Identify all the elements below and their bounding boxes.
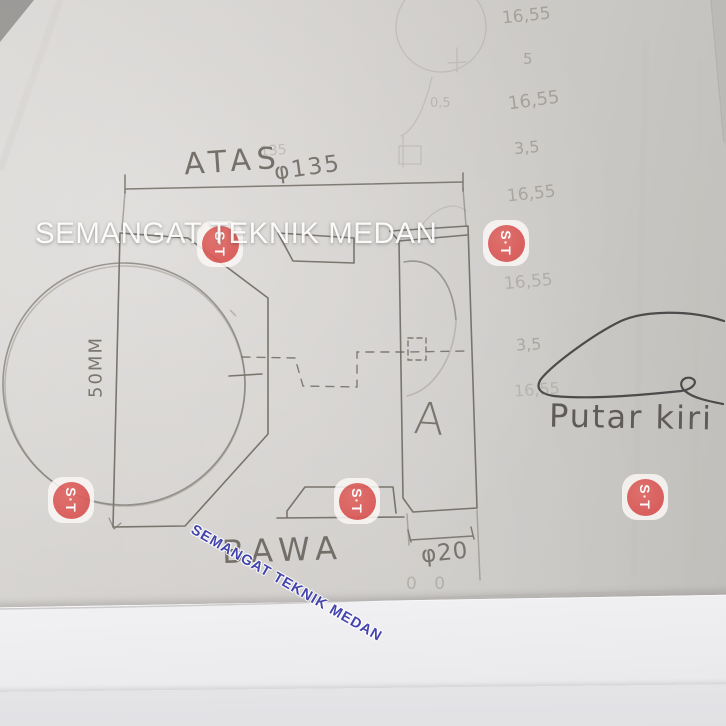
- stamp-circle: S·T: [339, 483, 376, 520]
- height-dimension: 50MM: [86, 336, 107, 398]
- stamp-circle: S·T: [53, 482, 90, 519]
- stamp-logo: S·T: [622, 474, 668, 520]
- ghost-mark: 135: [259, 142, 287, 160]
- bore-diameter-dimension: φ20: [420, 538, 470, 569]
- sketch-strokes: [0, 0, 726, 726]
- stamp-monogram: S·T: [637, 484, 653, 510]
- erased-sketch: [396, 0, 486, 228]
- stamp-monogram: S·T: [498, 230, 514, 256]
- stamp-logo: S·T: [48, 477, 94, 523]
- faint-measurement: 3,5: [516, 334, 542, 354]
- faint-measurement: 3,5: [513, 137, 540, 158]
- faint-measurement: 16,55: [503, 270, 553, 294]
- stamp-circle: S·T: [627, 479, 664, 516]
- photo-of-hand-drawn-technical-sketch: S·T S·T S·T S·T S·T ATAS φ135 50MM A BAW…: [0, 0, 726, 726]
- ghost-mark: 0 0: [406, 574, 451, 594]
- section-label: A: [412, 393, 446, 446]
- shaft-side-view: [390, 226, 477, 512]
- ghost-mark: 0,5: [430, 96, 451, 111]
- faint-measurement: 5: [523, 50, 533, 68]
- horizontal-watermark: SEMANGAT TEKNIK MEDAN: [35, 217, 437, 251]
- stamp-logo: S·T: [483, 220, 529, 266]
- stamp-circle: S·T: [488, 225, 525, 262]
- rotate-left-note: Putar kiri: [549, 397, 714, 438]
- stamp-logo: S·T: [334, 478, 380, 524]
- faint-measurement: 16,55: [513, 378, 560, 400]
- stamp-monogram: S·T: [349, 488, 365, 514]
- stamp-monogram: S·T: [63, 487, 79, 513]
